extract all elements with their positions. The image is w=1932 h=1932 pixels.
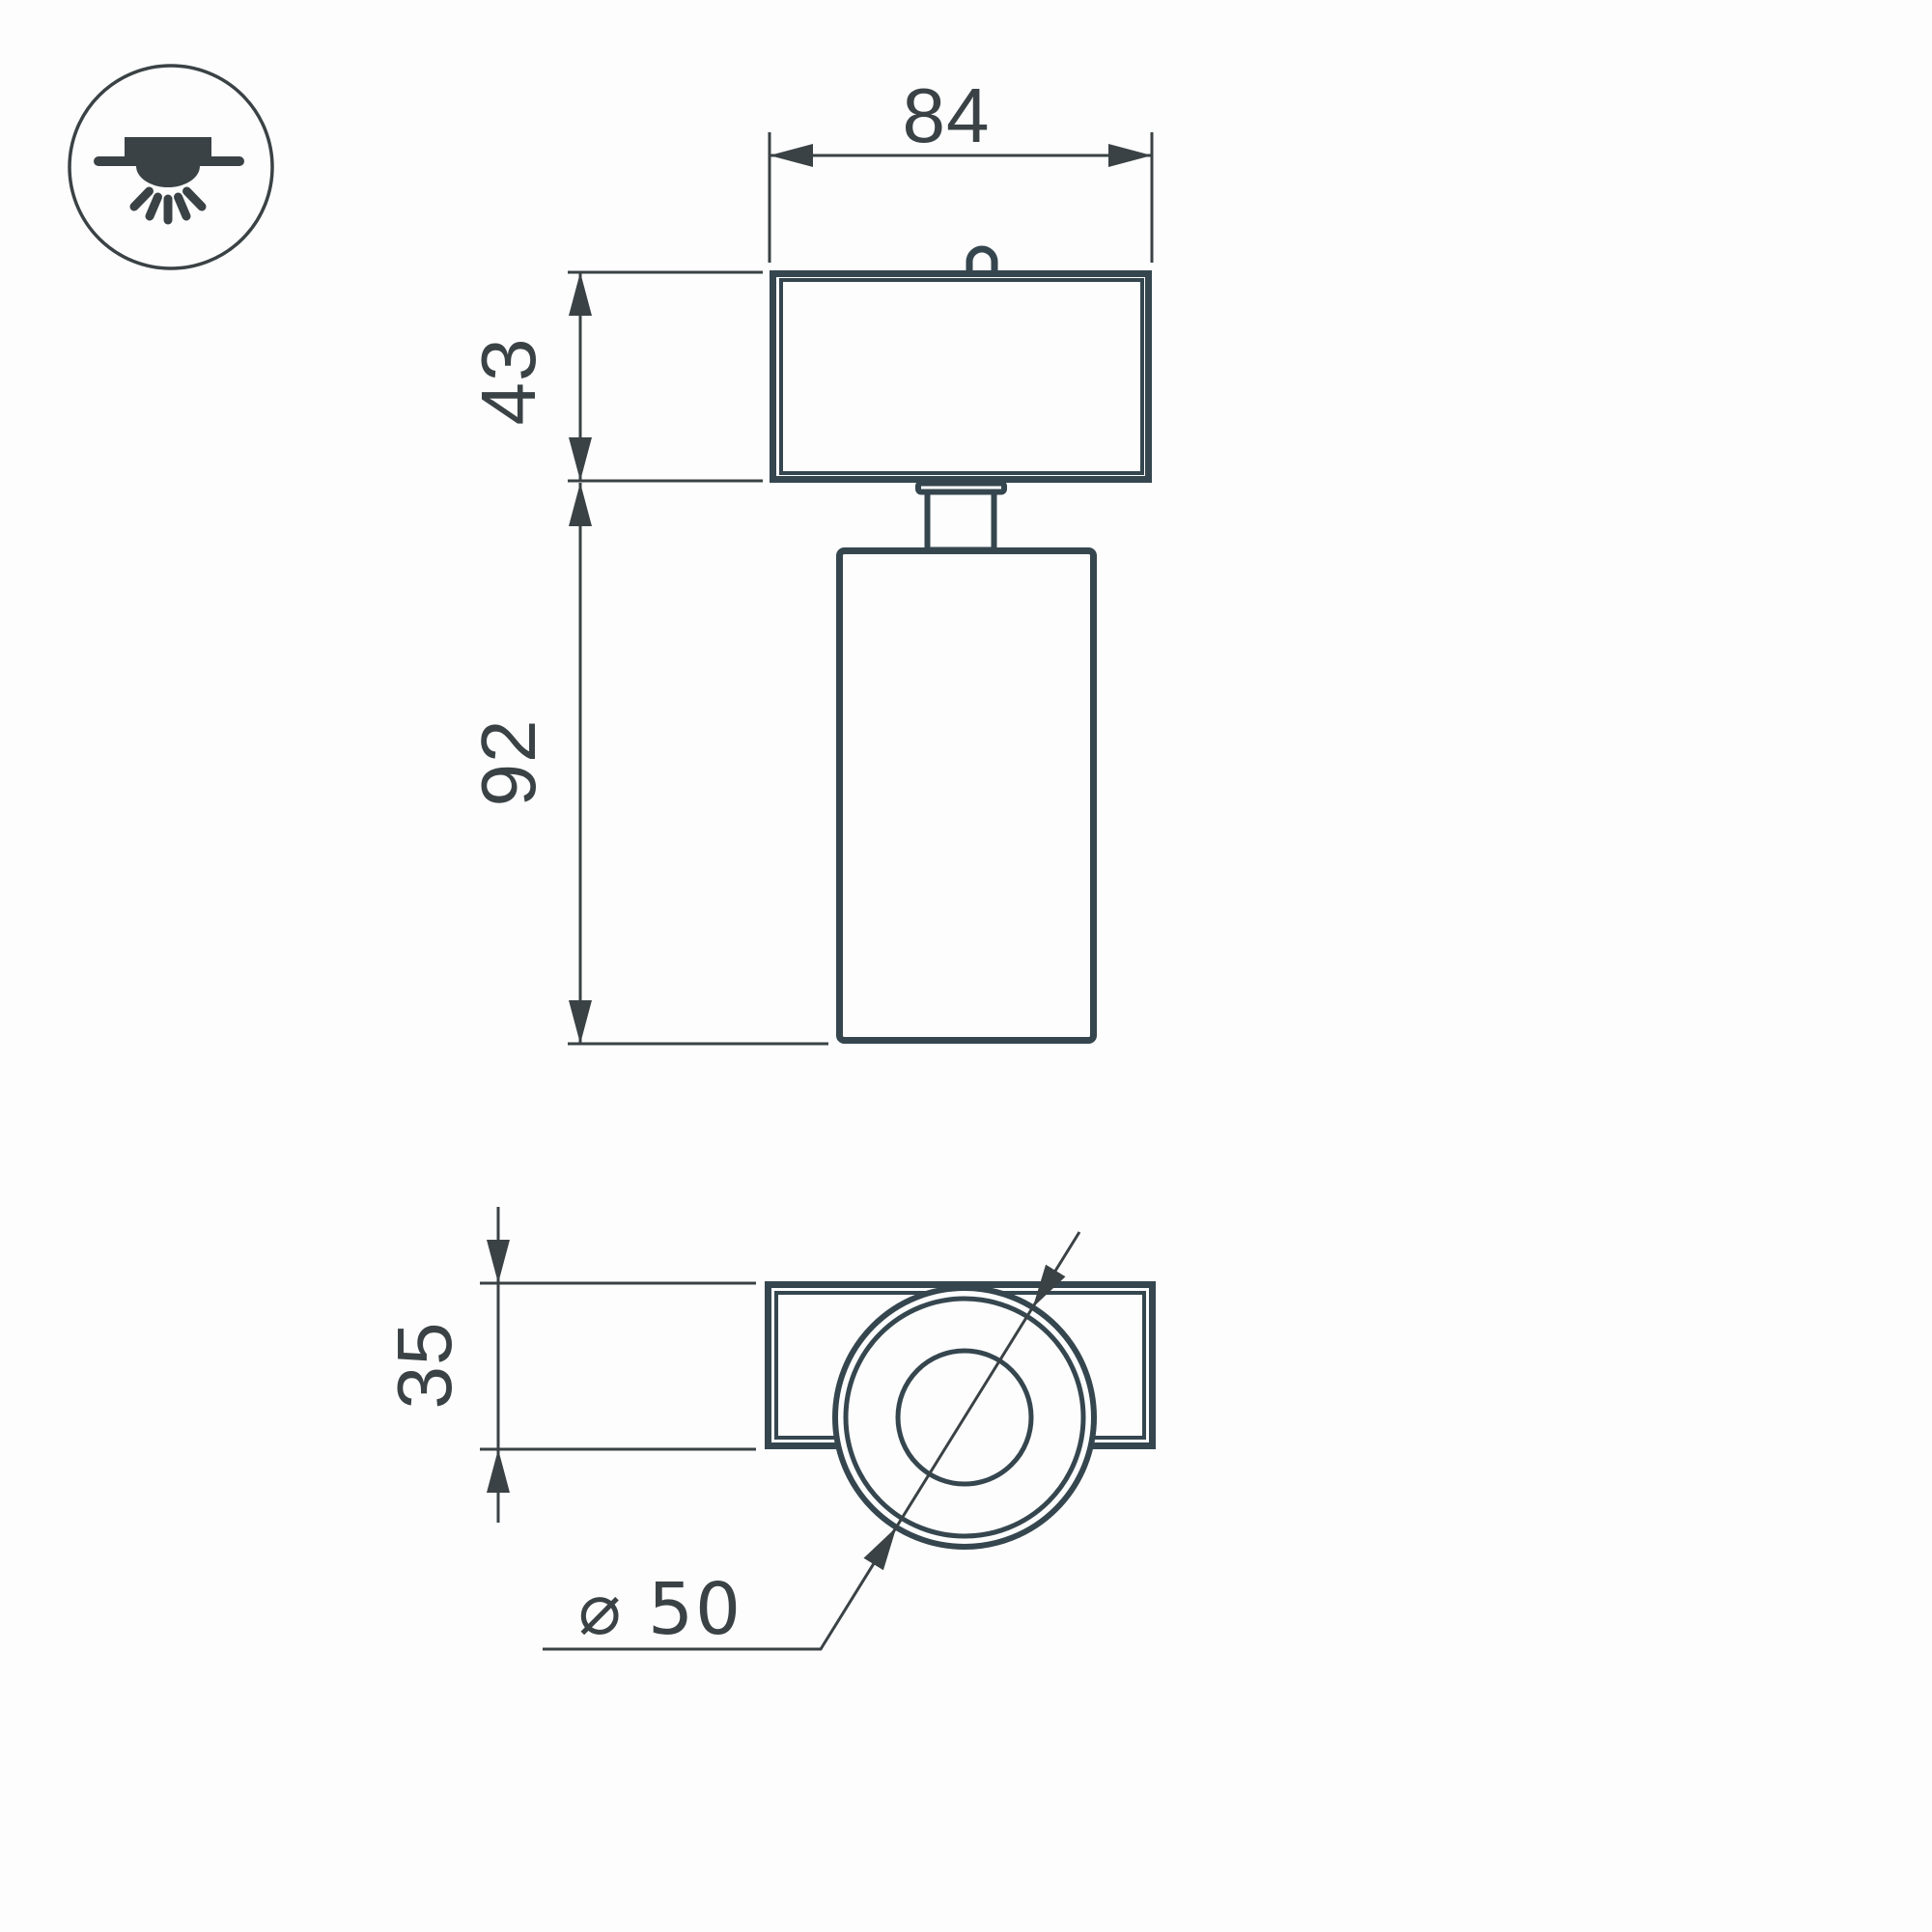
front-view [773,249,1149,1041]
lamp-cylinder [840,551,1094,1041]
icon-ceiling-line [94,156,244,166]
arrowhead [1108,144,1152,167]
diameter-dimension-label: ⌀ 50 [578,1568,742,1651]
canopy-height-dimension-label: 43 [465,338,551,426]
canopy-outline [773,274,1149,480]
arrowhead [487,1449,510,1493]
luminaire-dimension-drawing: 84 43 92 35 ⌀ 50 [0,0,1932,1932]
light-ray [179,197,187,216]
arrowhead [569,483,592,526]
icon-fixture-body [125,137,211,159]
arrowhead [569,272,592,316]
icon-lamp-dome [136,166,200,187]
light-ray [150,197,158,216]
bottom-view [769,1285,1153,1548]
arrowhead [864,1527,897,1571]
canopy-knob [969,249,994,272]
arrowhead [569,437,592,481]
arrowhead [569,1000,592,1044]
spot-neck [928,488,994,550]
width-dimension-label: 84 [903,72,991,158]
arrowhead [487,1240,510,1283]
light-ray [187,191,203,207]
light-ray [134,191,150,207]
arrowhead [770,144,813,167]
spot-neck-flange [918,484,1004,492]
body-height-dimension-label: 92 [465,719,551,807]
icon-light-rays [134,191,202,220]
depth-dimension-label: 35 [381,1322,467,1410]
mount-type-icon [70,66,272,268]
technical-drawing-page: 84 43 92 35 ⌀ 50 [0,0,1932,1932]
